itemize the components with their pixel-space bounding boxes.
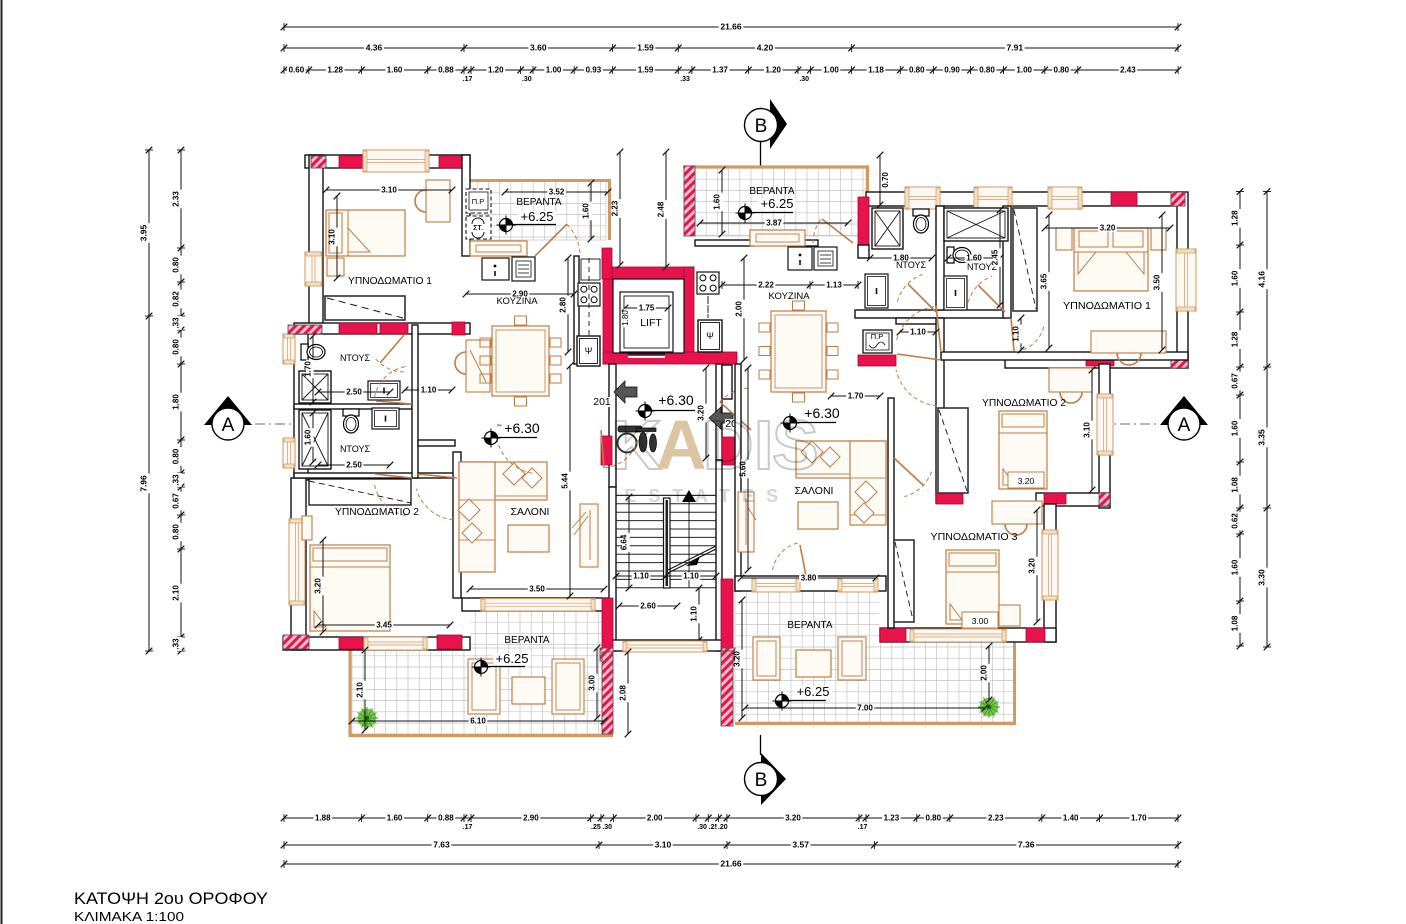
svg-text:2.45: 2.45 [991, 249, 1000, 265]
svg-text:3.00: 3.00 [588, 675, 597, 691]
svg-text:3.20: 3.20 [314, 578, 323, 594]
svg-text:.33: .33 [172, 317, 181, 329]
svg-text:3.20: 3.20 [1028, 558, 1037, 574]
svg-text:1.88: 1.88 [315, 814, 331, 823]
svg-text:+6.30: +6.30 [504, 420, 540, 436]
svg-text:7.36: 7.36 [1018, 840, 1035, 850]
svg-text:3.20: 3.20 [785, 814, 801, 823]
svg-text:1.28: 1.28 [1231, 331, 1240, 347]
svg-text:.30: .30 [522, 76, 532, 83]
svg-text:Ψ: Ψ [585, 346, 593, 356]
svg-text:3.50: 3.50 [529, 585, 545, 594]
svg-text:2.10: 2.10 [356, 682, 365, 698]
svg-text:.17: .17 [463, 76, 473, 83]
svg-text:ΝΤΟΥΣ: ΝΤΟΥΣ [340, 353, 371, 363]
svg-text:1.75: 1.75 [639, 304, 655, 313]
svg-text:1.60: 1.60 [387, 66, 403, 75]
svg-text:1.59: 1.59 [638, 66, 654, 75]
svg-text:ΒΕΡΑΝΤΑ: ΒΕΡΑΝΤΑ [504, 635, 550, 646]
svg-text:1.10: 1.10 [1012, 326, 1021, 342]
svg-text:Ψ: Ψ [706, 331, 714, 341]
svg-text:ΒΕΡΑΝΤΑ: ΒΕΡΑΝΤΑ [516, 197, 562, 208]
svg-text:0.80: 0.80 [979, 66, 995, 75]
svg-text:3.35: 3.35 [1257, 429, 1267, 446]
svg-text:3.87: 3.87 [766, 219, 782, 228]
svg-text:1.70: 1.70 [848, 392, 864, 401]
svg-text:0.88: 0.88 [438, 66, 454, 75]
svg-text:3.10: 3.10 [1083, 422, 1092, 438]
svg-text:1.20: 1.20 [488, 66, 504, 75]
svg-text:0.88: 0.88 [438, 814, 454, 823]
svg-text:1.23: 1.23 [884, 814, 900, 823]
svg-text:3.10: 3.10 [655, 840, 672, 850]
svg-text:ΣΑΛΟΝΙ: ΣΑΛΟΝΙ [795, 485, 834, 497]
svg-text:1.37: 1.37 [712, 66, 728, 75]
svg-text:7.91: 7.91 [1007, 43, 1024, 53]
svg-text:1.60: 1.60 [713, 194, 722, 210]
svg-text:4.20: 4.20 [757, 43, 774, 53]
svg-text:1.10: 1.10 [633, 572, 649, 581]
svg-text:3.95: 3.95 [139, 224, 149, 241]
svg-text:1.80: 1.80 [621, 310, 630, 326]
svg-text:2.00: 2.00 [647, 814, 663, 823]
svg-text:ΚΑΤΟΨΗ 2ου ΟΡΟΦΟΥ: ΚΑΤΟΨΗ 2ου ΟΡΟΦΟΥ [74, 890, 268, 908]
svg-text:.33: .33 [172, 474, 181, 486]
svg-text:2.00: 2.00 [980, 665, 989, 681]
svg-text:7.63: 7.63 [433, 840, 450, 850]
svg-text:.30: .30 [799, 76, 809, 83]
svg-text:3.57: 3.57 [792, 840, 809, 850]
svg-text:0.80: 0.80 [172, 257, 181, 273]
svg-text:1.08: 1.08 [1231, 477, 1240, 493]
svg-text:0.80: 0.80 [172, 339, 181, 355]
svg-text:A: A [1178, 415, 1191, 436]
svg-text:1.70: 1.70 [304, 361, 313, 377]
svg-text:2.08: 2.08 [619, 685, 628, 701]
svg-text:K: K [611, 406, 662, 484]
svg-text:2.00: 2.00 [735, 301, 744, 317]
svg-text:ΥΠΝΟΔΩΜΑΤΙΟ 1: ΥΠΝΟΔΩΜΑΤΙΟ 1 [1063, 300, 1151, 312]
svg-text:A: A [222, 415, 235, 436]
svg-text:1.60: 1.60 [387, 814, 403, 823]
svg-text:1.00: 1.00 [823, 66, 839, 75]
svg-text:1.70: 1.70 [1131, 814, 1147, 823]
svg-text:3.20: 3.20 [1018, 476, 1035, 486]
svg-text:1.28: 1.28 [327, 66, 343, 75]
svg-text:3.50: 3.50 [1153, 274, 1162, 290]
svg-text:5.44: 5.44 [561, 473, 570, 489]
svg-text:2.50: 2.50 [346, 461, 362, 470]
svg-text:3.10: 3.10 [381, 186, 397, 195]
svg-text:ΥΠΝΟΔΩΜΑΤΙΟ 3: ΥΠΝΟΔΩΜΑΤΙΟ 3 [931, 531, 1018, 543]
svg-text:2.60: 2.60 [640, 602, 656, 611]
svg-text:0.82: 0.82 [172, 291, 181, 307]
svg-text:1.18: 1.18 [868, 66, 884, 75]
svg-text:.17: .17 [858, 824, 868, 831]
svg-text:ΚΟΥΖΙΝΑ: ΚΟΥΖΙΝΑ [768, 291, 810, 302]
svg-text:21.66: 21.66 [720, 22, 742, 32]
svg-text:.30: .30 [602, 824, 612, 831]
svg-text:ΚΛΙΜΑΚΑ 1:100: ΚΛΙΜΑΚΑ 1:100 [74, 909, 184, 924]
svg-text:A: A [656, 406, 707, 484]
svg-text:ΣΑΛΟΝΙ: ΣΑΛΟΝΙ [511, 506, 550, 518]
svg-text:1.08: 1.08 [1231, 615, 1240, 631]
svg-text:+6.25: +6.25 [761, 196, 794, 211]
svg-text:3.20: 3.20 [1100, 224, 1116, 233]
svg-text:ΝΤΟΥΣ: ΝΤΟΥΣ [896, 260, 927, 270]
svg-text:.30: .30 [697, 824, 707, 831]
svg-text:1.40: 1.40 [1063, 814, 1079, 823]
svg-text:7.00: 7.00 [857, 704, 873, 713]
svg-text:1.10: 1.10 [683, 572, 699, 581]
svg-text:E S T A T E S: E S T A T E S [624, 486, 781, 506]
svg-text:ΥΠΝΟΔΩΜΑΤΙΟ 1: ΥΠΝΟΔΩΜΑΤΙΟ 1 [348, 275, 432, 287]
svg-text:1.60: 1.60 [582, 203, 591, 219]
svg-text:.25: .25 [591, 824, 601, 831]
svg-text:2.33: 2.33 [172, 191, 181, 207]
svg-text:1.59: 1.59 [637, 43, 654, 53]
svg-text:Π.Ρ: Π.Ρ [871, 332, 884, 341]
svg-text:1.60: 1.60 [1231, 420, 1240, 436]
svg-text:Π.Ρ: Π.Ρ [472, 197, 485, 206]
svg-text:ΚΟΥΖΙΝΑ: ΚΟΥΖΙΝΑ [496, 296, 538, 307]
svg-text:1.60: 1.60 [1231, 270, 1240, 286]
svg-text:2.50: 2.50 [346, 388, 362, 397]
svg-text:2.22: 2.22 [758, 281, 774, 290]
svg-text:0.80: 0.80 [172, 448, 181, 464]
svg-text:B: B [755, 770, 768, 791]
svg-text:S: S [772, 406, 819, 484]
svg-text:.20: .20 [718, 824, 728, 831]
svg-text:3.10: 3.10 [328, 229, 337, 245]
svg-text:6.64: 6.64 [620, 534, 629, 550]
svg-text:21.66: 21.66 [720, 859, 742, 869]
svg-text:ΝΤΟΥΣ: ΝΤΟΥΣ [340, 444, 371, 454]
svg-text:1.28: 1.28 [1230, 210, 1239, 226]
svg-text:1.10: 1.10 [910, 328, 926, 337]
svg-text:0.70: 0.70 [881, 172, 890, 188]
svg-text:1.00: 1.00 [546, 66, 562, 75]
svg-text:3.45: 3.45 [376, 621, 392, 630]
svg-text:0.62: 0.62 [1231, 513, 1240, 529]
svg-text:+6.25: +6.25 [521, 209, 554, 224]
svg-text:+6.25: +6.25 [496, 651, 529, 666]
svg-text:1.80: 1.80 [172, 394, 181, 410]
svg-text:0.80: 0.80 [909, 66, 925, 75]
svg-text:B: B [755, 116, 768, 137]
svg-text:3.30: 3.30 [1257, 569, 1267, 586]
svg-text:0.93: 0.93 [586, 66, 602, 75]
svg-text:0.60: 0.60 [289, 66, 305, 75]
svg-text:2.23: 2.23 [988, 814, 1004, 823]
svg-text:1.60: 1.60 [304, 429, 313, 445]
svg-text:3.80: 3.80 [801, 574, 817, 583]
svg-text:ΥΠΝΟΔΩΜΑΤΙΟ 2: ΥΠΝΟΔΩΜΑΤΙΟ 2 [982, 397, 1066, 409]
svg-text:ΥΠΝΟΔΩΜΑΤΙΟ 2: ΥΠΝΟΔΩΜΑΤΙΟ 2 [335, 506, 419, 518]
svg-text:I: I [754, 406, 773, 484]
svg-text:2.48: 2.48 [657, 201, 666, 217]
svg-text:4.16: 4.16 [1256, 271, 1266, 288]
svg-text:6.10: 6.10 [470, 717, 486, 726]
svg-text:.33: .33 [680, 76, 690, 83]
svg-text:1.20: 1.20 [765, 66, 781, 75]
svg-text:0.80: 0.80 [172, 524, 181, 540]
svg-text:.17: .17 [463, 824, 473, 831]
svg-text:ΣΤ.: ΣΤ. [473, 225, 483, 232]
svg-text:201: 201 [593, 396, 611, 408]
svg-text:1.00: 1.00 [1016, 66, 1032, 75]
svg-text:1.10: 1.10 [421, 386, 437, 395]
svg-text:LIFT: LIFT [640, 317, 662, 329]
svg-text:3.00: 3.00 [972, 616, 989, 626]
svg-text:ΒΕΡΑΝΤΑ: ΒΕΡΑΝΤΑ [787, 620, 833, 631]
svg-text:3.60: 3.60 [530, 43, 547, 53]
svg-text:0.80: 0.80 [926, 814, 942, 823]
svg-text:2.10: 2.10 [172, 585, 181, 601]
svg-text:3.65: 3.65 [1040, 273, 1049, 289]
svg-text:2.90: 2.90 [523, 814, 539, 823]
svg-text:0.67: 0.67 [1231, 373, 1240, 389]
svg-text:0.90: 0.90 [944, 66, 960, 75]
svg-text:7.96: 7.96 [139, 475, 149, 492]
svg-text:.33: .33 [172, 638, 181, 650]
svg-text:4.36: 4.36 [366, 43, 383, 53]
svg-text:1.10: 1.10 [690, 606, 699, 622]
svg-text:1.60: 1.60 [1231, 559, 1240, 575]
svg-text:2.43: 2.43 [1120, 66, 1136, 75]
svg-text:+6.25: +6.25 [797, 684, 830, 699]
svg-text:3.20: 3.20 [733, 651, 742, 667]
svg-text:0.80: 0.80 [1054, 66, 1070, 75]
svg-text:1.13: 1.13 [826, 281, 842, 290]
svg-text:2.23: 2.23 [611, 200, 620, 216]
svg-text:3.52: 3.52 [549, 188, 565, 197]
svg-text:D: D [703, 406, 754, 484]
svg-text:0.67: 0.67 [172, 493, 181, 509]
svg-text:2.80: 2.80 [559, 297, 568, 313]
